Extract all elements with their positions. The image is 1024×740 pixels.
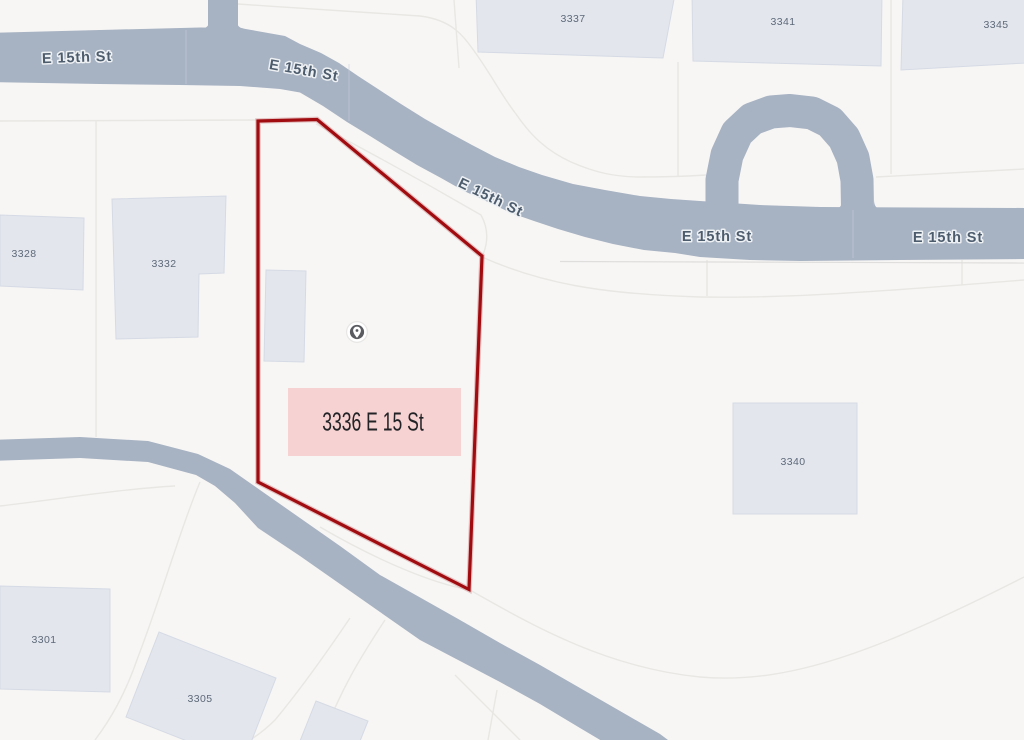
svg-text:3336 E 15 St: 3336 E 15 St: [322, 407, 423, 436]
svg-text:3340: 3340: [781, 456, 806, 468]
svg-text:3337: 3337: [561, 13, 586, 25]
svg-text:3305: 3305: [188, 693, 213, 705]
svg-text:3332: 3332: [152, 258, 177, 270]
svg-text:3341: 3341: [771, 16, 796, 28]
svg-text:E 15th St: E 15th St: [913, 230, 983, 246]
svg-text:3301: 3301: [32, 634, 57, 646]
svg-text:E 15th St: E 15th St: [682, 229, 752, 245]
svg-text:3328: 3328: [12, 248, 37, 260]
svg-text:E 15th St: E 15th St: [42, 49, 113, 67]
svg-text:3345: 3345: [984, 19, 1009, 31]
